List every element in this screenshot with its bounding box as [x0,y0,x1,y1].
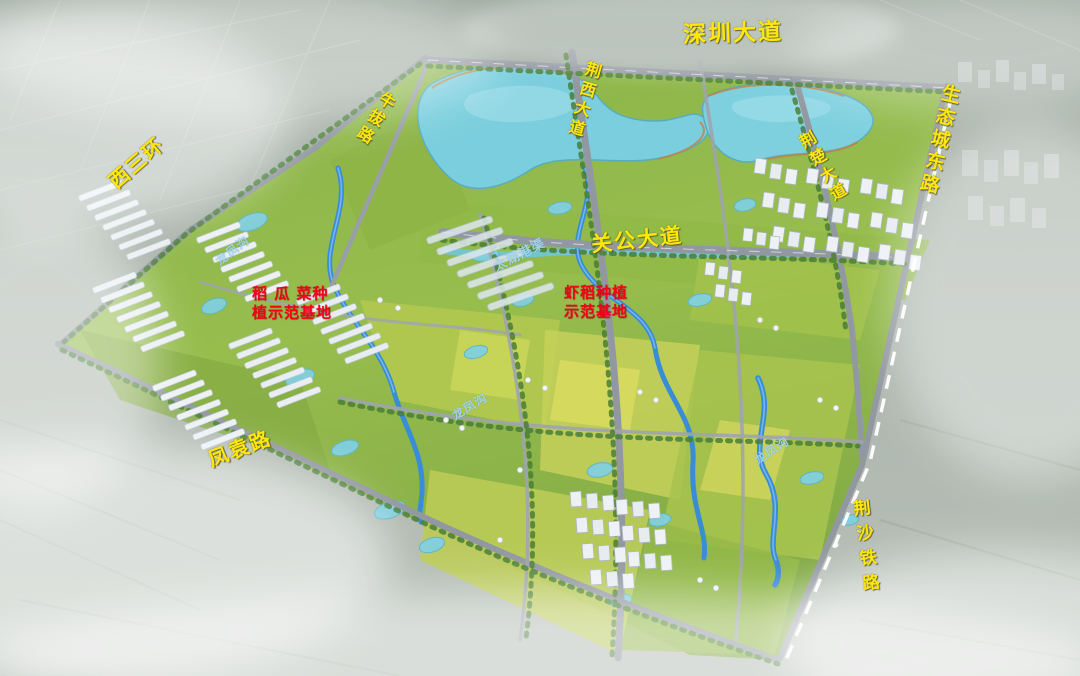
masterplan-rendering: 深圳大道 生态城东路 西三环 牛拔路 荆西大道 荆楚大道 关公大道 凤袁路 荆沙… [0,0,1080,676]
masterplan-artwork [0,0,1080,676]
haze-veil [0,0,1080,676]
